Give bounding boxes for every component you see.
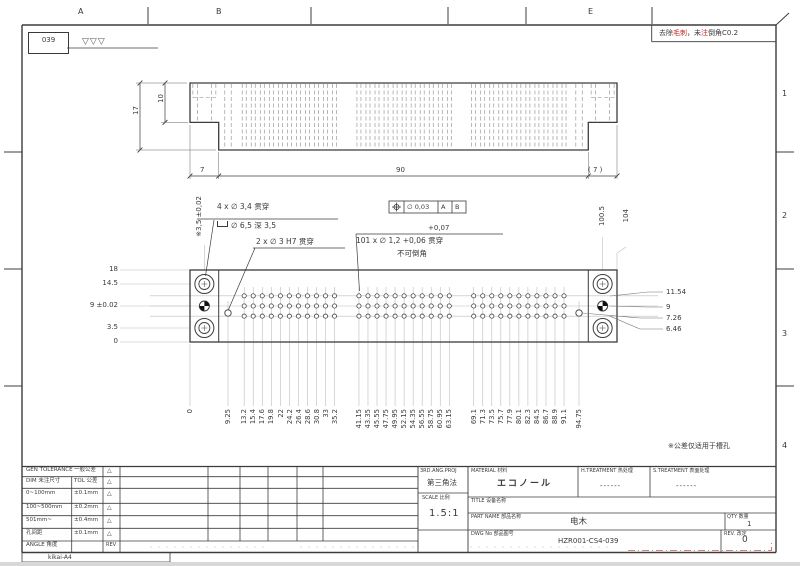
bottom-ordinate-label: 77.9	[507, 409, 514, 424]
bottom-ordinate-label: 9.25	[225, 409, 232, 424]
paper-code: kikai-A4	[48, 555, 72, 561]
tolerance-row-tol: ±0.2mm	[74, 505, 98, 511]
revision-triangle-icon: △	[107, 479, 112, 485]
s-treatment-value: ------	[676, 483, 697, 490]
material-label: MATERIAL 材料	[471, 469, 507, 474]
bottom-ordinate-label: 88.9	[552, 409, 559, 424]
tolerance-row-dim: 孔间距	[26, 531, 43, 537]
qty-label: QTY 数量	[727, 515, 749, 520]
revision-triangle-icon: △	[107, 491, 112, 497]
deburr-note: 去除毛刺，未注倒角C0.2	[659, 30, 738, 37]
tolerance-row-tol: 一般公差	[74, 468, 96, 474]
bottom-ordinate-label: 49.95	[392, 409, 399, 428]
counterbore-icon	[217, 221, 228, 227]
position-tolerance-value: ∅ 0,03	[407, 204, 429, 211]
bottom-ordinate-label: 41.15	[356, 409, 363, 428]
revision-triangle-icon: △	[107, 468, 112, 474]
bottom-ordinate-label: 47.75	[383, 409, 390, 428]
callout-h7-holes: 2 x ∅ 3 H7 贯穿	[256, 238, 314, 246]
bottom-ordinate-label: 45.55	[374, 409, 381, 428]
bottom-ordinate-label: 22	[278, 409, 285, 418]
dwg-no-value: HZR001-CS4-039	[558, 538, 618, 545]
bottom-ordinate-label: 17.6	[259, 409, 266, 424]
left-ordinate-label: 14.5	[102, 280, 118, 287]
qty-value: 1	[747, 521, 751, 528]
tolerance-row-dim: 501mm~	[26, 518, 52, 524]
revision-triangle-icon: △	[107, 531, 112, 537]
revision-triangle-icon: △	[107, 518, 112, 524]
callout-small-holes: 101 x ∅ 1,2 +0,06 贯穿	[356, 237, 443, 245]
bottom-ordinate-label: 0	[187, 409, 194, 413]
drawing-sheet: 039 ▽▽▽ 去除毛刺，未注倒角C0.2 ※公差仅适用于槽孔 4 x ∅ 3,…	[0, 0, 800, 562]
bottom-ordinate-label: 30.8	[314, 409, 321, 424]
bottom-ordinate-label: 33	[323, 409, 330, 418]
projection-label: 3RD.ANG.PROJ	[420, 469, 457, 474]
note-segment: ，未	[687, 29, 701, 37]
note-segment: 倒角C0.2	[708, 29, 738, 37]
position-tolerance-datum-b: B	[455, 204, 459, 211]
tolerance-row-tol: TOL 公差	[74, 479, 98, 485]
bottom-ordinate-label: 91.1	[561, 409, 568, 424]
bottom-ordinate-label: 84.5	[534, 409, 541, 424]
left-ordinate-label: 9 ±0.02	[90, 302, 118, 309]
zone-letter: A	[78, 8, 83, 16]
tolerance-row-dim: DIM 未注尺寸	[26, 479, 60, 485]
rev-value: 0	[742, 536, 748, 545]
top-ordinate-label: 104	[623, 209, 630, 222]
h-treatment-label: H.TREATMENT 热处理	[581, 469, 633, 474]
callout-cbore-holes: 4 x ∅ 3,4 贯穿	[217, 203, 269, 211]
bottom-ordinate-label: 43.35	[365, 409, 372, 428]
dim-height: 17	[133, 106, 140, 115]
bottom-ordinate-label: 71.3	[480, 409, 487, 424]
bottom-ordinate-label: 94.75	[576, 409, 583, 428]
position-tolerance-datum-a: A	[441, 204, 445, 211]
bottom-ordinate-label: 60.95	[437, 409, 444, 428]
bottom-ordinate-label: 52.15	[401, 409, 408, 428]
revision-triangle-icon: △	[107, 505, 112, 511]
dim-step-height: 10	[158, 94, 165, 103]
top-ordinate-label: 100.5	[599, 206, 606, 226]
bottom-ordinate-label: 28.6	[305, 409, 312, 424]
h-treatment-value: ------	[600, 483, 621, 490]
right-ordinate-label: 7.26	[666, 315, 682, 322]
bottom-ordinate-label: 75.7	[498, 409, 505, 424]
bottom-ordinate-label: 63.15	[446, 409, 453, 428]
tolerance-footnote: ※公差仅适用于槽孔	[668, 443, 730, 450]
title-label: TITLE 设备名称	[471, 499, 506, 504]
tolerance-row-tol: ±0.4mm	[74, 518, 98, 524]
zone-number: 4	[782, 442, 787, 450]
bottom-ordinate-label: 86.7	[543, 409, 550, 424]
tolerance-row-dim: GEN TOLERANCE	[26, 468, 73, 474]
part-name-value: 电木	[570, 518, 587, 527]
tolerance-row-dim: 0~100mm	[26, 491, 55, 497]
star-dimension: ※3,5 ±0,02	[196, 196, 203, 237]
zone-number: 1	[782, 90, 787, 98]
right-ordinate-label: 9	[666, 304, 670, 311]
note-segment: 毛刺	[673, 29, 687, 37]
bottom-ordinate-label: 82.3	[525, 409, 532, 424]
material-value: エコノール	[497, 480, 552, 489]
zone-letter: B	[216, 8, 222, 16]
callout-small-holes-upper-tol: +0,07	[428, 225, 449, 232]
projection-value: 第三角法	[427, 479, 457, 487]
dim-left-step: 7	[200, 167, 204, 174]
left-ordinate-label: 18	[109, 266, 118, 273]
callout-cbore-spec: ∅ 6,5 深 3,5	[217, 221, 276, 230]
bottom-ordinate-label: 56.55	[419, 409, 426, 428]
scale-value: 1.5:1	[429, 509, 460, 519]
tolerance-row-dim: ANGLE 角度	[26, 543, 57, 549]
bottom-ordinate-label: 13.2	[241, 409, 248, 424]
surface-finish-symbols: ▽▽▽	[82, 38, 106, 47]
dwg-no-label: DWG No 部品图号	[471, 532, 514, 537]
bottom-ordinate-label: 15.4	[250, 409, 257, 424]
left-ordinate-label: 0	[114, 338, 118, 345]
tolerance-row-tol: ±0.1mm	[74, 531, 98, 537]
zone-number: 2	[782, 212, 787, 220]
dim-right-step: ( 7 )	[588, 167, 602, 174]
bottom-ordinate-label: 24.2	[287, 409, 294, 424]
tolerance-row-dim: 100~500mm	[26, 505, 62, 511]
bottom-ordinate-label: 35.2	[332, 409, 339, 424]
dim-body: 90	[396, 167, 405, 174]
rev-column-label: REV	[106, 543, 116, 548]
bottom-ordinate-label: 69.1	[471, 409, 478, 424]
bottom-ordinate-label: 80.1	[516, 409, 523, 424]
left-ordinate-label: 3.5	[107, 324, 118, 331]
stamp-box: 039	[28, 32, 69, 54]
note-segment: 去除	[659, 29, 673, 37]
bottom-ordinate-label: 19.8	[268, 409, 275, 424]
part-name-label: PART NAME 部品名称	[471, 515, 521, 520]
right-ordinate-label: 6.46	[666, 326, 682, 333]
bottom-ordinate-label: 26.4	[296, 409, 303, 424]
zone-letter: E	[588, 8, 593, 16]
bottom-ordinate-label: 54.35	[410, 409, 417, 428]
s-treatment-label: S.TREATMENT 表面处理	[653, 469, 709, 474]
callout-no-chamfer: 不可倒角	[397, 250, 427, 258]
tolerance-row-tol: ±0.1mm	[74, 491, 98, 497]
drawing-canvas	[0, 0, 800, 562]
scale-label: SCALE 比例	[422, 496, 450, 501]
bottom-ordinate-label: 73.5	[489, 409, 496, 424]
zone-number: 3	[782, 330, 787, 338]
right-ordinate-label: 11.54	[666, 289, 686, 296]
bottom-ordinate-label: 58.75	[428, 409, 435, 428]
note-segment: 注	[701, 29, 708, 37]
